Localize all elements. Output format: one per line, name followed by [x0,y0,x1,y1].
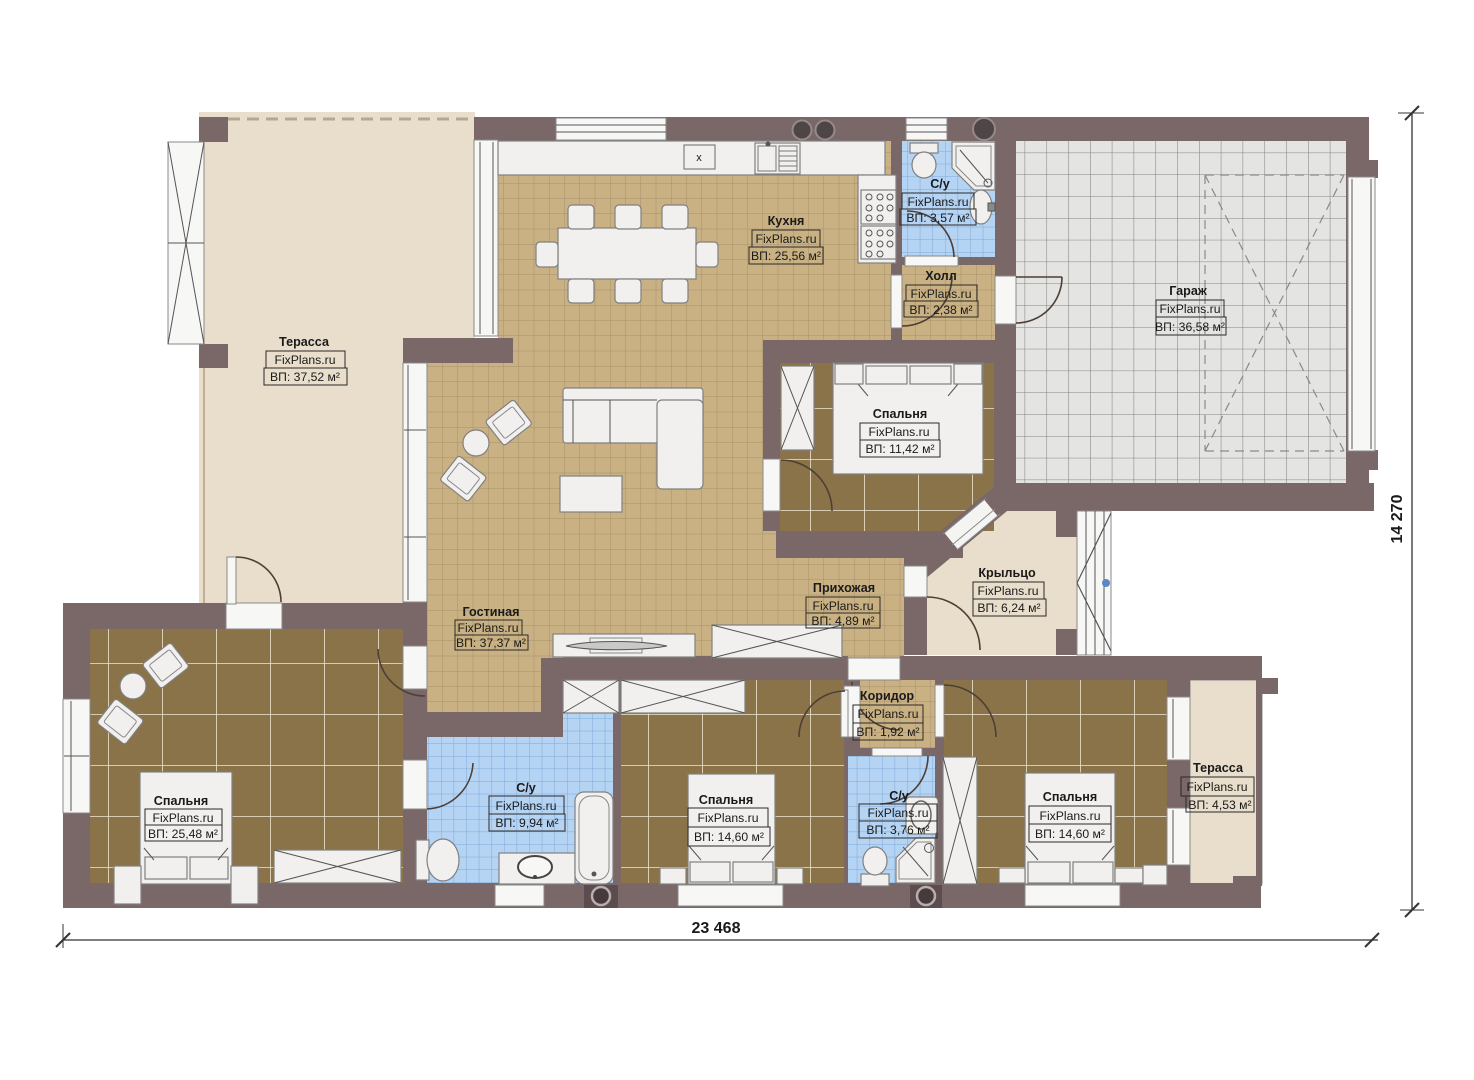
svg-text:FixPlans.ru: FixPlans.ru [1160,302,1221,316]
svg-text:x: x [696,152,702,164]
svg-text:ВП: 36,58 м²: ВП: 36,58 м² [1155,320,1225,334]
svg-text:Кухня: Кухня [768,214,805,228]
svg-text:FixPlans.ru: FixPlans.ru [908,195,969,209]
svg-text:FixPlans.ru: FixPlans.ru [275,353,336,367]
svg-text:FixPlans.ru: FixPlans.ru [1040,809,1101,823]
svg-text:ВП: 4,53 м²: ВП: 4,53 м² [1188,798,1251,812]
svg-text:Гараж: Гараж [1169,284,1208,298]
svg-text:FixPlans.ru: FixPlans.ru [698,811,759,825]
svg-text:С/у: С/у [930,177,950,191]
svg-text:ВП: 3,76 м²: ВП: 3,76 м² [866,823,929,837]
svg-text:Холл: Холл [925,269,957,283]
svg-text:Терасса: Терасса [279,335,330,349]
svg-text:ВП: 2,38 м²: ВП: 2,38 м² [909,303,972,317]
svg-text:ВП: 11,42 м²: ВП: 11,42 м² [865,442,934,456]
svg-text:ВП: 6,24 м²: ВП: 6,24 м² [977,601,1040,615]
svg-text:FixPlans.ru: FixPlans.ru [868,806,929,820]
svg-text:ВП: 3,57 м²: ВП: 3,57 м² [906,211,969,225]
svg-text:Крыльцо: Крыльцо [978,566,1036,580]
svg-text:FixPlans.ru: FixPlans.ru [813,599,874,613]
svg-text:FixPlans.ru: FixPlans.ru [1187,780,1248,794]
svg-text:FixPlans.ru: FixPlans.ru [496,799,557,813]
svg-text:FixPlans.ru: FixPlans.ru [858,707,919,721]
svg-text:Спальня: Спальня [1043,790,1097,804]
svg-text:С/у: С/у [889,789,909,803]
svg-text:Спальня: Спальня [699,793,753,807]
svg-text:ВП: 25,48 м²: ВП: 25,48 м² [148,827,218,841]
svg-text:FixPlans.ru: FixPlans.ru [978,584,1039,598]
svg-text:FixPlans.ru: FixPlans.ru [458,621,519,635]
svg-text:ВП: 1,92 м²: ВП: 1,92 м² [856,725,919,739]
svg-text:ВП: 9,94 м²: ВП: 9,94 м² [495,816,558,830]
svg-text:ВП: 37,37 м²: ВП: 37,37 м² [456,636,526,650]
svg-text:FixPlans.ru: FixPlans.ru [153,811,214,825]
svg-text:Спальня: Спальня [154,794,208,808]
svg-text:ВП: 37,52 м²: ВП: 37,52 м² [270,370,340,384]
svg-text:Прихожая: Прихожая [813,581,875,595]
svg-text:С/у: С/у [516,781,536,795]
svg-text:ВП: 4,89 м²: ВП: 4,89 м² [811,614,874,628]
svg-text:Терасса: Терасса [1193,761,1244,775]
svg-text:ВП: 14,60 м²: ВП: 14,60 м² [694,830,764,844]
svg-text:FixPlans.ru: FixPlans.ru [869,425,930,439]
svg-text:ВП: 14,60 м²: ВП: 14,60 м² [1035,827,1105,841]
svg-text:ВП: 25,56 м²: ВП: 25,56 м² [751,249,821,263]
svg-text:Гостиная: Гостиная [463,605,520,619]
svg-text:23 468: 23 468 [692,920,741,937]
svg-text:14 270: 14 270 [1389,494,1406,543]
svg-text:Спальня: Спальня [873,407,927,421]
svg-text:FixPlans.ru: FixPlans.ru [756,232,817,246]
svg-text:Коридор: Коридор [860,689,915,703]
svg-text:FixPlans.ru: FixPlans.ru [911,287,972,301]
